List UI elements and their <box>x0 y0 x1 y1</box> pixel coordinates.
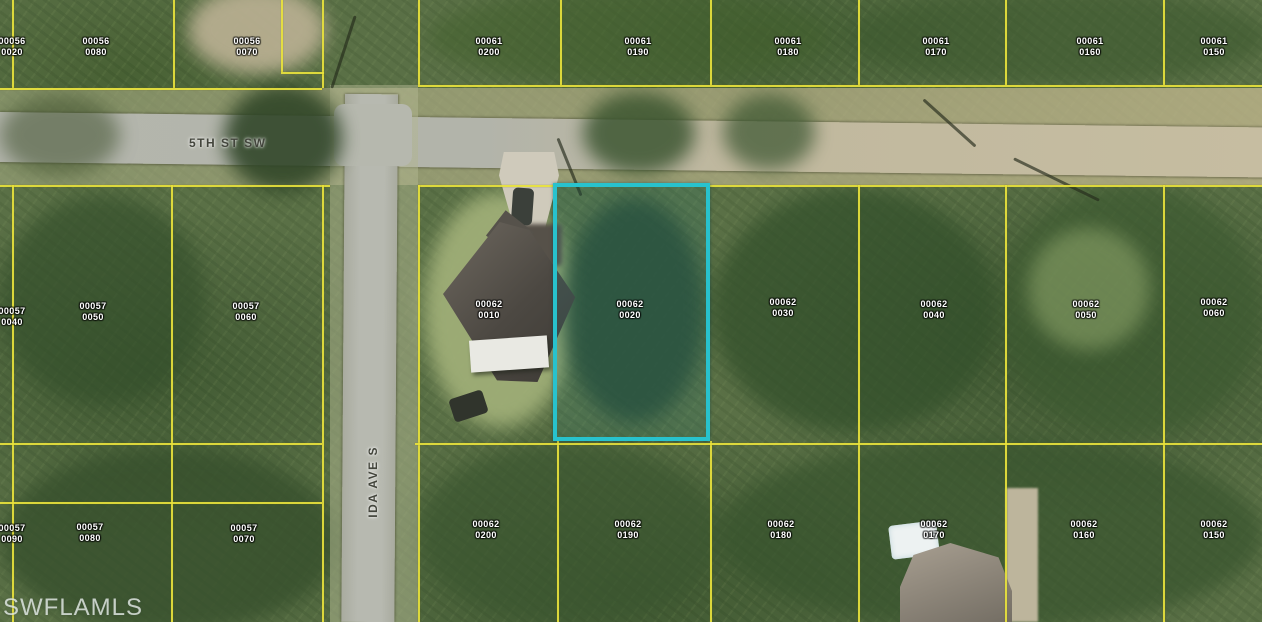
parcel-lot-number: 0010 <box>475 310 502 321</box>
street-label-5th-st-sw: 5TH ST SW <box>189 136 267 150</box>
parcel-block-number: 00062 <box>920 519 947 530</box>
parcel-block-number: 00062 <box>767 519 794 530</box>
parcel-boundary-line <box>171 185 173 622</box>
parcel-label: 000620160 <box>1070 519 1097 541</box>
parcel-boundary-line <box>1163 185 1165 622</box>
parcel-lot-number: 0180 <box>774 47 801 58</box>
parcel-label: 000610190 <box>624 36 651 58</box>
parcel-lot-number: 0190 <box>624 47 651 58</box>
parcel-label: 000570090 <box>0 523 26 545</box>
parcel-label: 000620180 <box>767 519 794 541</box>
parcel-block-number: 00056 <box>233 36 260 47</box>
parcel-block-number: 00061 <box>1200 36 1227 47</box>
street-label-ida-ave-s: IDA AVE S <box>366 446 380 518</box>
parcel-block-number: 00062 <box>614 519 641 530</box>
parcel-label: 000610160 <box>1076 36 1103 58</box>
parcel-label: 000620200 <box>472 519 499 541</box>
highlighted-parcel-label: 000620020 <box>616 299 643 321</box>
parcel-lot-number: 0020 <box>0 47 26 58</box>
parcel-lot-number: 0080 <box>76 533 103 544</box>
parcel-boundary-line <box>281 72 324 74</box>
parcel-block-number: 00057 <box>79 301 106 312</box>
parcel-lot-number: 0030 <box>769 308 796 319</box>
parcel-boundary-line <box>418 185 420 622</box>
parcel-boundary-line <box>418 0 420 85</box>
parcel-label: 000620170 <box>920 519 947 541</box>
parcel-block-number: 00062 <box>475 299 502 310</box>
parcel-boundary-line <box>0 185 330 187</box>
parcel-block-number: 00062 <box>1200 297 1227 308</box>
tree-canopy <box>0 95 120 175</box>
parcel-lot-number: 0150 <box>1200 47 1227 58</box>
parcel-lot-number: 0150 <box>1200 530 1227 541</box>
parcel-boundary-line <box>560 0 562 85</box>
parcel-lot-number: 0040 <box>0 317 26 328</box>
parcel-lot-number: 0190 <box>614 530 641 541</box>
tree-canopy <box>723 94 815 170</box>
shed <box>469 335 549 372</box>
parcel-block-number: 00056 <box>82 36 109 47</box>
parcel-label: 000620150 <box>1200 519 1227 541</box>
parcel-block-number: 00062 <box>472 519 499 530</box>
parcel-block-number: 00057 <box>232 301 259 312</box>
parcel-block-number: 00056 <box>0 36 26 47</box>
parcel-boundary-line <box>415 443 1262 445</box>
parcel-boundary-line <box>173 0 175 88</box>
parcel-boundary-line <box>281 0 283 72</box>
parcel-boundary-line <box>0 88 322 90</box>
parcel-label: 000570080 <box>76 522 103 544</box>
parcel-lot-number: 0200 <box>472 530 499 541</box>
parcel-lot-number: 0160 <box>1070 530 1097 541</box>
parcel-label: 000620050 <box>1072 299 1099 321</box>
watermark-swflamls: SWFLAMLS <box>3 594 143 622</box>
parcel-boundary-line <box>418 85 1262 87</box>
parcel-label: 000560080 <box>82 36 109 58</box>
parcel-block-number: 00057 <box>76 522 103 533</box>
parcel-label: 000570070 <box>230 523 257 545</box>
parcel-lot-number: 0040 <box>920 310 947 321</box>
parcel-lot-number: 0050 <box>1072 310 1099 321</box>
parcel-label: 000620040 <box>920 299 947 321</box>
parcel-label: 000610180 <box>774 36 801 58</box>
grass-patch <box>1028 228 1150 350</box>
parcel-block-number: 00062 <box>616 299 643 310</box>
parcel-block-number: 00061 <box>774 36 801 47</box>
parcel-block-number: 00062 <box>920 299 947 310</box>
road-ida-ave-s-pavement <box>341 94 398 622</box>
parcel-block-number: 00062 <box>1072 299 1099 310</box>
parcel-boundary-line <box>708 185 1262 187</box>
parcel-label: 000610200 <box>475 36 502 58</box>
parcel-boundary-line <box>418 185 557 187</box>
parcel-boundary-line <box>858 185 860 622</box>
tree-canopy <box>583 92 695 174</box>
parcel-lot-number: 0180 <box>767 530 794 541</box>
parcel-boundary-line <box>1005 0 1007 85</box>
parcel-lot-number: 0070 <box>233 47 260 58</box>
parcel-block-number: 00061 <box>624 36 651 47</box>
parcel-boundary-line <box>1005 185 1007 622</box>
parcel-boundary-line <box>858 0 860 85</box>
parcel-label: 000620190 <box>614 519 641 541</box>
parcel-lot-number: 0050 <box>79 312 106 323</box>
parcel-boundary-line <box>322 0 324 88</box>
parcel-boundary-line <box>322 185 324 622</box>
parcel-label: 000570050 <box>79 301 106 323</box>
parcel-lot-number: 0200 <box>475 47 502 58</box>
parcel-block-number: 00062 <box>1200 519 1227 530</box>
parcel-label: 000560070 <box>233 36 260 58</box>
parcel-boundary-line <box>0 502 322 504</box>
parcel-label: 000610150 <box>1200 36 1227 58</box>
parcel-block-number: 00062 <box>769 297 796 308</box>
parcel-boundary-line <box>710 441 712 622</box>
parcel-boundary-line <box>557 441 559 622</box>
parcel-block-number: 00062 <box>1070 519 1097 530</box>
parcel-lot-number: 0060 <box>1200 308 1227 319</box>
parcel-lot-number: 0160 <box>1076 47 1103 58</box>
parcel-block-number: 00057 <box>230 523 257 534</box>
road-intersection <box>334 104 412 166</box>
parcel-lot-number: 0020 <box>616 310 643 321</box>
tree-canopy <box>418 443 720 622</box>
tree-canopy <box>712 188 997 433</box>
parcel-label: 000620010 <box>475 299 502 321</box>
parcel-lot-number: 0170 <box>920 530 947 541</box>
aerial-parcel-map: 0005600200005600800005600700006102000006… <box>0 0 1262 622</box>
parcel-lot-number: 0060 <box>232 312 259 323</box>
parcel-label: 000570040 <box>0 306 26 328</box>
parcel-label: 000620060 <box>1200 297 1227 319</box>
parcel-label: 000560020 <box>0 36 26 58</box>
parcel-boundary-line <box>710 0 712 85</box>
parcel-lot-number: 0170 <box>922 47 949 58</box>
parcel-label: 000570060 <box>232 301 259 323</box>
parcel-boundary-line <box>12 185 14 622</box>
parcel-block-number: 00057 <box>0 306 26 317</box>
parcel-block-number: 00061 <box>1076 36 1103 47</box>
parcel-block-number: 00061 <box>922 36 949 47</box>
parcel-label: 000610170 <box>922 36 949 58</box>
parcel-block-number: 00061 <box>475 36 502 47</box>
tree-canopy <box>0 195 205 405</box>
parcel-lot-number: 0090 <box>0 534 26 545</box>
parcel-block-number: 00057 <box>0 523 26 534</box>
parcel-lot-number: 0070 <box>230 534 257 545</box>
parcel-boundary-line <box>1163 0 1165 85</box>
parcel-boundary-line <box>0 443 322 445</box>
parcel-label: 000620030 <box>769 297 796 319</box>
parcel-lot-number: 0080 <box>82 47 109 58</box>
